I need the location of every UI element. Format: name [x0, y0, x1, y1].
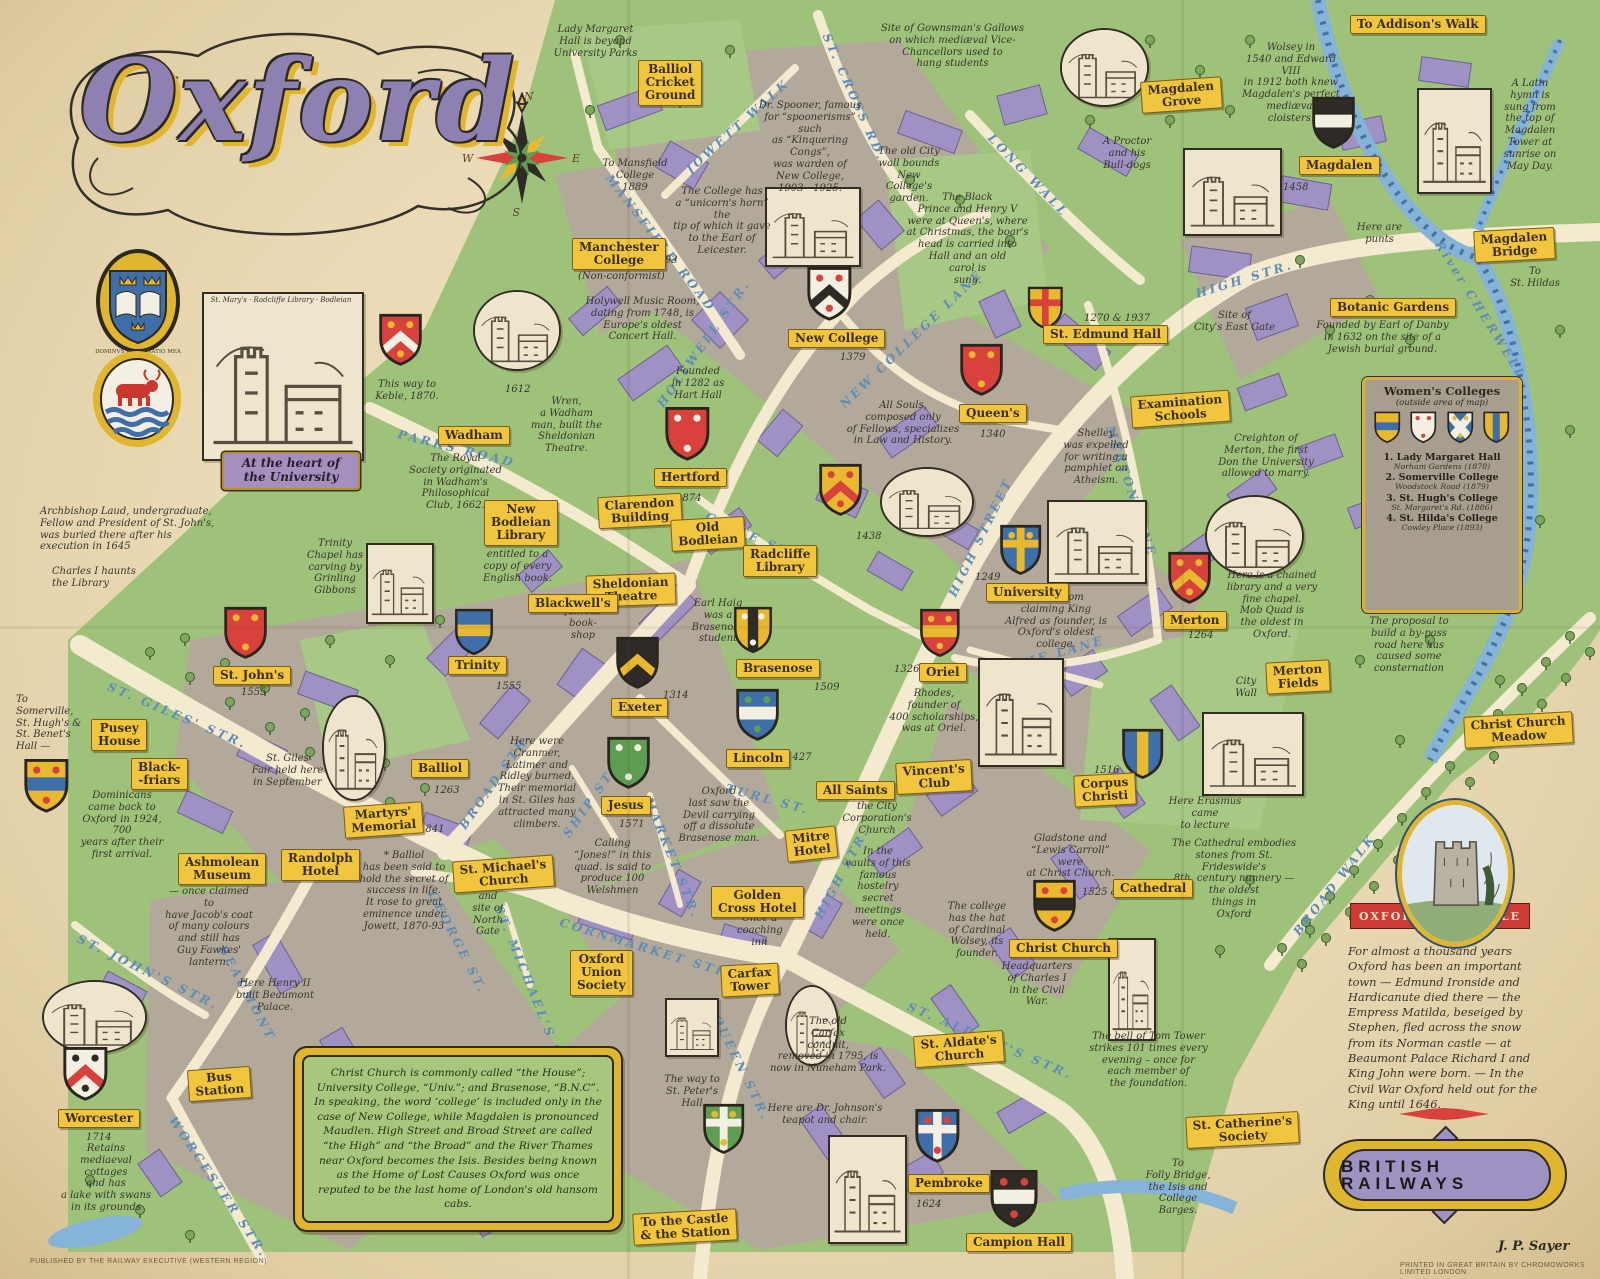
- note-henry-ii: Here Henry II built Beaumont Palace.: [230, 978, 320, 1013]
- womens-colleges-box: Women's Colleges (outside area of map) 1…: [1362, 377, 1522, 613]
- shield-wadham-shield: [377, 313, 424, 373]
- note-latin-hymn: A Latin hymn is sung from the top of Mag…: [1500, 78, 1560, 172]
- shield-lmh-shield: [1373, 411, 1402, 449]
- note-shelley: Shelley was expelled for writing a pamph…: [1050, 428, 1142, 487]
- banner-martyrs-memorial: Martyrs' Memorial: [343, 801, 424, 839]
- banner-golden-cross-hotel: Golden Cross Hotel: [711, 886, 804, 918]
- banner-pusey-house: Pusey House: [91, 719, 147, 751]
- picture-christ-church-quad-view: [978, 658, 1064, 767]
- note-balliol-secret: * Balliol has been said to hold the secr…: [354, 850, 454, 933]
- banner-christ-church: Christ Church: [1009, 939, 1118, 958]
- womens-colleges-shields: [1373, 411, 1511, 449]
- picture-worcester-terrace-view: [42, 980, 147, 1054]
- note-holywell-music: Holywell Music Room, dating from 1748, i…: [585, 296, 700, 343]
- note-city-church: the City Corporation's Church: [838, 801, 916, 836]
- shield-new-college-shield: [805, 266, 854, 328]
- banner-brasenose: Brasenose: [736, 659, 820, 678]
- banner-st-edmund-hall: St. Edmund Hall: [1043, 325, 1168, 344]
- banner-magdalen-grove: Magdalen Grove: [1140, 76, 1223, 114]
- shield-hertford-shield: [663, 406, 712, 468]
- note-spooner: Dr. Spooner, famous for “spoonerisms” su…: [755, 100, 865, 194]
- year-label: 1249: [975, 573, 1000, 583]
- university-crest-icon: DOMINVS ILLVMINATIO MEA: [92, 245, 184, 357]
- banner-st-johns: St. John's: [213, 666, 291, 685]
- year-label: 1326: [894, 665, 919, 675]
- year-label: 1263: [434, 786, 459, 796]
- year-label: 1270 & 1937: [1084, 314, 1150, 324]
- note-coaching-inn: Once a coaching inn: [737, 913, 782, 948]
- note-botanic: Founded by Earl of Danby in 1632 on the …: [1310, 320, 1455, 355]
- note-jones: Calling “Jones!” in this quad. is said t…: [570, 838, 655, 897]
- year-label: 1555: [241, 688, 266, 698]
- banner-balliol-cricket-ground: Balliol Cricket Ground: [638, 60, 702, 106]
- note-gallows: Site of Gownsman's Gallows on which medi…: [880, 23, 1025, 70]
- year-label: 1624: [916, 1200, 941, 1210]
- year-label: 1509: [814, 683, 839, 693]
- note-lady-margaret: Lady Margaret Hall is beyond University …: [548, 24, 643, 59]
- banner-st-catherines-society: St. Catherine's Society: [1185, 1111, 1300, 1149]
- note-copyright-library: entitled to a copy of every English book…: [480, 549, 555, 584]
- oxford-pictorial-map-poster: Oxford: [0, 0, 1600, 1279]
- year-label: (Non-conformist): [578, 272, 665, 282]
- picture-heart-of-university: [202, 292, 364, 461]
- note-to-somerville: To Somerville, St. Hugh's & St. Benet's …: [16, 694, 86, 753]
- banner-trinity: Trinity: [448, 656, 507, 675]
- shield-campion-shield: [988, 1169, 1040, 1235]
- note-johnson: Here are Dr. Johnson's teapot and chair.: [765, 1103, 885, 1127]
- year-label: 1612: [505, 385, 530, 395]
- note-carfax-conduit: The old Carfax conduit, removed in 1795,…: [768, 1016, 888, 1075]
- picture-queens-front-view: [880, 467, 974, 537]
- shield-pusey-shield: [22, 758, 71, 820]
- banner-carfax-tower: Carfax Tower: [720, 963, 779, 998]
- note-east-gate: Site of City's East Gate: [1192, 310, 1277, 334]
- banner-oriel: Oriel: [919, 663, 967, 682]
- banner-wadham: Wadham: [438, 426, 510, 445]
- note-city-wall: City Wall: [1226, 676, 1266, 700]
- picture-merton-garden-view: [1205, 495, 1304, 577]
- banner-old-bodleian: Old Bodleian: [670, 516, 745, 552]
- banner-randolph-hotel: Randolph Hotel: [281, 849, 360, 881]
- note-punts: Here are punts: [1342, 222, 1417, 246]
- note-rhodes: Rhodes, founder of 400 scholarships, was…: [888, 688, 980, 735]
- banner-cathedral: Cathedral: [1113, 879, 1193, 898]
- imprint-printer: PRINTED IN GREAT BRITAIN BY CHROMOWORKS …: [1400, 1262, 1600, 1276]
- banner-worcester: Worcester: [58, 1109, 140, 1128]
- note-erasmus: Here Erasmus came to lecture: [1155, 796, 1255, 831]
- banner-lincoln: Lincoln: [726, 749, 790, 768]
- note-jacobs-coat: — once claimed to have Jacob's coat of m…: [164, 886, 254, 969]
- note-folly-bridge: To Folly Bridge, the Isis and College Ba…: [1142, 1158, 1214, 1217]
- picture-holywell-room-view: [473, 290, 561, 371]
- note-devil: Oxford last saw the Devil carrying off a…: [675, 786, 763, 845]
- banner-bus-station: Bus Station: [187, 1066, 252, 1103]
- city-ox-crest-icon: [90, 348, 184, 450]
- banner-merton: Merton: [1163, 611, 1227, 630]
- year-label: 1555: [496, 682, 521, 692]
- shield-st-hildas-shield: [1482, 411, 1511, 449]
- banner-vincents-club: Vincent's Club: [895, 759, 973, 795]
- note-laud: Archbishop Laud, undergraduate, Fellow a…: [40, 506, 225, 553]
- banner-corpus-christi: Corpus Christi: [1073, 772, 1136, 808]
- red-diamond-divider-icon: [1399, 1108, 1489, 1120]
- shield-trinity-shield: [453, 608, 495, 662]
- note-mitre-vaults: In the vaults of this famous hostelry se…: [838, 846, 918, 940]
- banner-hertford: Hertford: [654, 468, 727, 487]
- legend-plaque: Christ Church is commonly called “the Ho…: [293, 1046, 623, 1232]
- picture-magdalen-college-view: [1183, 148, 1282, 236]
- womens-college-entry: 4. St. Hilda's CollegeCowley Place (1893…: [1371, 514, 1513, 533]
- shield-queens-shield: [958, 343, 1005, 403]
- womens-college-entry: 1. Lady Margaret HallNorham Gardens (187…: [1371, 453, 1513, 472]
- shield-exeter-shield: [614, 636, 661, 696]
- banner-pembroke: Pembroke: [908, 1174, 990, 1193]
- british-railways-totem: BRITISH RAILWAYS: [1323, 1133, 1567, 1217]
- note-north-gate: and site of North Gate: [468, 891, 508, 938]
- note-wolsey-hat: The college has the hat of Cardinal Wols…: [944, 901, 1010, 960]
- compass-e: E: [571, 152, 580, 165]
- banner-campion-hall: Campion Hall: [966, 1233, 1072, 1252]
- imprint-publisher: PUBLISHED BY THE RAILWAY EXECUTIVE (WEST…: [30, 1258, 267, 1265]
- note-hart-hall: Founded in 1282 as Hart Hall: [668, 366, 728, 401]
- year-label: 1379: [840, 353, 865, 363]
- shield-lincoln-shield: [734, 688, 781, 748]
- banner-christ-church-meadow: Christ Church Meadow: [1463, 711, 1574, 749]
- banner-radcliffe-library: Radcliffe Library: [743, 545, 817, 577]
- banner-balliol: Balliol: [411, 759, 469, 778]
- womens-colleges-subtitle: (outside area of map): [1371, 398, 1513, 408]
- shield-university-shield: [998, 524, 1043, 582]
- banner-botanic-gardens: Botanic Gardens: [1330, 298, 1456, 317]
- banner-queens: Queen's: [959, 404, 1027, 423]
- artist-signature: J. P. Sayer: [1498, 1240, 1569, 1253]
- note-worcester-note: Retains mediaeval cottages and has a lak…: [56, 1143, 156, 1214]
- year-label: 1458: [1283, 183, 1308, 193]
- note-unicorn: The College has a “unicorn's horn” the t…: [672, 186, 772, 257]
- year-label: 1438: [856, 532, 881, 542]
- note-to-mansfield: To Mansfield College 1889: [600, 158, 670, 193]
- note-bypass: The proposal to build a by-pass road her…: [1364, 616, 1454, 675]
- note-dominicans: Dominicans came back to Oxford in 1924, …: [72, 790, 172, 861]
- picture-university-college-view: [1047, 500, 1147, 584]
- womens-colleges-title: Women's Colleges: [1371, 385, 1513, 398]
- shield-christ-church-shield: [1031, 879, 1078, 939]
- castle-sketch-icon: [1402, 805, 1508, 942]
- shield-pembroke-shield: [913, 1108, 962, 1170]
- picture-merton-college-view: [1202, 712, 1304, 796]
- womens-college-entry: 3. St. Hugh's CollegeSt. Margaret's Rd. …: [1371, 494, 1513, 513]
- banner-oxford-union-society: Oxford Union Society: [570, 950, 633, 996]
- year-label: 1340: [980, 430, 1005, 440]
- banner-merton-fields: Merton Fields: [1265, 659, 1330, 695]
- shield-magdalen-shield: [1310, 96, 1357, 156]
- shield-all-souls-shield: [817, 463, 864, 523]
- shield-st-hughs-shield: [1446, 411, 1475, 449]
- banner-jesus: Jesus: [601, 796, 651, 815]
- womens-colleges-list: 1. Lady Margaret HallNorham Gardens (187…: [1371, 453, 1513, 533]
- womens-college-entry: 2. Somerville CollegeWoodstock Road (187…: [1371, 473, 1513, 492]
- banner-ashmolean-museum: Ashmolean Museum: [178, 853, 266, 885]
- british-railways-label: BRITISH RAILWAYS: [1341, 1158, 1549, 1192]
- shield-jesus-shield: [605, 736, 652, 796]
- banner-magdalen-bridge: Magdalen Bridge: [1473, 227, 1555, 264]
- note-keble: This way to Keble, 1870.: [374, 379, 440, 403]
- picture-trinity-chapel-view: [366, 543, 434, 624]
- note-trinity-chapel: Trinity Chapel has carving by Grinling G…: [300, 538, 370, 597]
- banner-new-college: New College: [788, 329, 885, 348]
- shield-somerville-shield: [1409, 411, 1438, 449]
- picture-magdalen-grove-view: [1060, 28, 1149, 107]
- totem-inner: BRITISH RAILWAYS: [1339, 1149, 1551, 1201]
- banner-exeter: Exeter: [611, 698, 668, 717]
- year-label: 1714: [86, 1133, 111, 1143]
- year-label: 1264: [1188, 631, 1213, 641]
- note-black-prince: The Black Prince and Henry V were at Que…: [905, 192, 1030, 286]
- legend-text: Christ Church is commonly called “the Ho…: [314, 1066, 602, 1212]
- picture-new-college-wall-view: [765, 187, 861, 267]
- note-tom-tower: The bell of Tom Tower strikes 101 times …: [1086, 1031, 1211, 1090]
- banner-university: University: [986, 583, 1069, 602]
- banner-to-addisons-walk: To Addison's Walk: [1350, 15, 1486, 34]
- shield-st-peters-shield: [701, 1103, 746, 1161]
- picture-st-peters-view: [665, 998, 719, 1057]
- poster-title: Oxford: [68, 46, 528, 158]
- banner-st-aldates-church: St. Aldate's Church: [913, 1030, 1005, 1069]
- note-charles: Charles I haunts the Library: [52, 566, 147, 590]
- note-wren: Wren, a Wadham man, built the Sheldonian…: [524, 396, 609, 455]
- banner-blackwells: Blackwell's: [528, 594, 618, 613]
- note-all-souls-note: All Souls, composed only of Fellows, spe…: [843, 400, 963, 447]
- note-creighton: Creighton of Merton, the first Don the U…: [1210, 433, 1322, 480]
- picture-magdalen-tower-view: [1417, 88, 1492, 194]
- banner-all-saints: All Saints: [816, 781, 895, 800]
- banner-to-castle-station: To the Castle & the Station: [632, 1208, 737, 1246]
- heart-of-university-caption: At the heart of the University: [222, 452, 360, 490]
- banner-new-bodleian-library: New Bodleian Library: [484, 500, 558, 546]
- year-label: 1571: [619, 820, 644, 830]
- note-hq-charles: Headquarters of Charles I in the Civil W…: [998, 961, 1076, 1008]
- note-gladstone: Gladstone and “Lewis Carroll” were at Ch…: [1018, 833, 1123, 880]
- shield-brasenose-shield: [732, 606, 774, 660]
- shield-oriel-shield: [918, 608, 962, 664]
- history-note: For almost a thousand years Oxford has b…: [1348, 944, 1544, 1112]
- banner-manchester-college: Manchester College: [572, 238, 666, 270]
- note-st-giles-fair: St. Giles Fair held here in September: [250, 753, 325, 788]
- note-cranmer: Here were Cranmer, Latimer and Ridley bu…: [478, 736, 596, 830]
- poster-title-block: Oxford: [38, 18, 558, 248]
- oxford-castle-medallion: [1397, 800, 1513, 947]
- note-st-hildas: To St. Hildas: [1510, 266, 1560, 290]
- note-proctor: A Proctor and his Bull-dogs: [1096, 136, 1158, 171]
- banner-blackfriars: Black- -friars: [131, 758, 188, 790]
- banner-mitre-hotel: Mitre Hotel: [784, 825, 838, 863]
- picture-martyrs-memorial-view: [322, 695, 386, 801]
- shield-merton-shield: [1166, 551, 1213, 611]
- heart-of-university-labels: St. Mary's · Radcliffe Library · Bodleia…: [206, 296, 356, 304]
- shield-worcester-shield: [61, 1046, 110, 1108]
- picture-johnson-house-view: [828, 1135, 907, 1244]
- note-chained-library: Here is a chained library and a very fin…: [1222, 570, 1322, 641]
- shield-st-johns-shield: [222, 606, 269, 666]
- banner-magdalen: Magdalen: [1299, 156, 1380, 175]
